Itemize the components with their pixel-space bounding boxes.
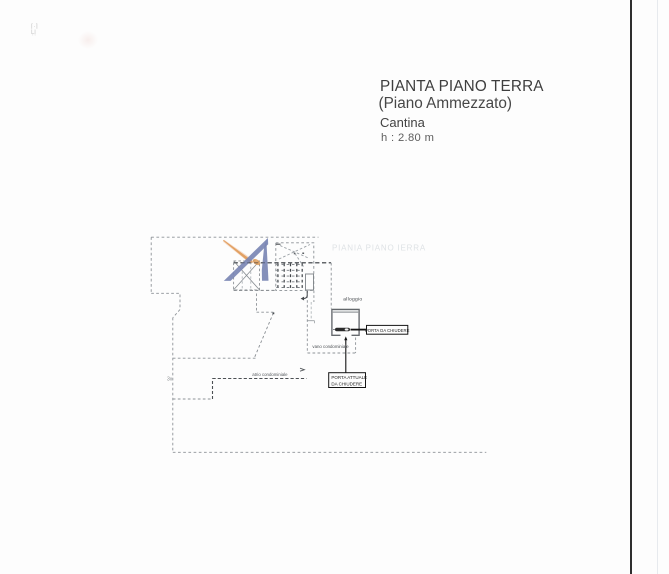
svg-text:3x: 3x [167,377,173,383]
svg-text:PORTA DA CHIUDERE: PORTA DA CHIUDERE [365,328,410,333]
svg-text:DA CHIUDERE: DA CHIUDERE [331,382,362,387]
svg-text:alloggio: alloggio [343,297,362,303]
svg-text:PORTA ATTUALE: PORTA ATTUALE [331,375,367,380]
svg-text:PIANIA PIANO IERRA: PIANIA PIANO IERRA [332,244,426,253]
svg-text:atrio condominiale: atrio condominiale [252,372,288,377]
svg-text:vano condominiale: vano condominiale [312,344,349,349]
